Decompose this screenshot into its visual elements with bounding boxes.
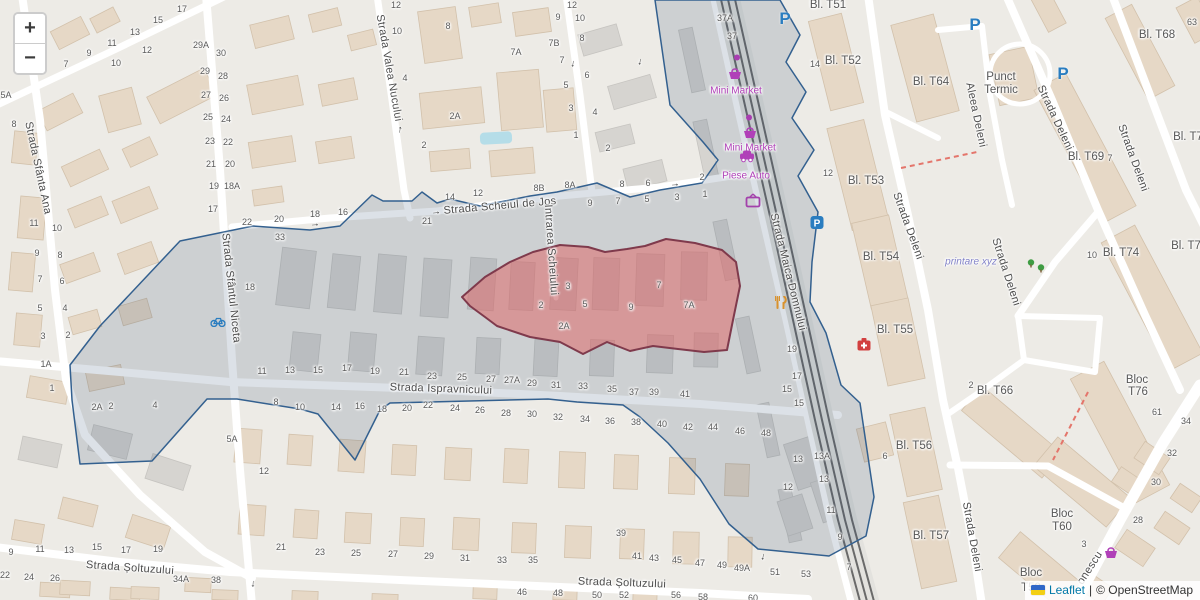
building [287,434,313,466]
map-geometry-layer [0,0,1200,600]
building [444,447,472,480]
parking-box-icon: P [810,215,825,235]
dashed-path [901,152,977,168]
building [619,529,644,560]
building [827,119,889,230]
building [513,8,552,37]
firstaid-icon [857,338,871,357]
osm-copyright: © OpenStreetMap [1096,583,1193,597]
pond [480,131,513,145]
building [871,298,925,386]
ukraine-flag-icon [1031,585,1045,595]
parking-icon: P [1057,64,1068,84]
building [503,448,529,483]
tree-icon [1037,260,1045,278]
building [399,517,424,546]
building [372,594,398,600]
building [318,78,358,106]
building [608,74,657,109]
building [347,29,376,51]
building [58,497,98,527]
map-canvas[interactable]: 791011121315175A81110987654321A129A30292… [0,0,1200,600]
building [18,436,62,468]
tree-icon [1027,255,1035,273]
building [185,577,212,592]
building [50,16,89,49]
basket-icon [1103,545,1119,565]
building [131,587,159,600]
zoom-out-button[interactable]: − [15,44,45,73]
building [247,75,304,114]
car-icon [739,149,755,168]
building [497,69,544,130]
building [469,3,502,27]
building [452,517,480,550]
building [1105,4,1175,99]
parking-icon: P [969,15,980,35]
building [60,580,91,596]
zoom-control: + − [13,12,47,75]
building [391,444,417,475]
building [511,523,536,554]
building [122,137,158,168]
building [90,7,120,33]
building [1176,0,1200,43]
tv-icon [746,194,761,213]
shop-dot-icon [734,48,741,66]
attribution-separator: | [1089,583,1092,597]
building [212,590,238,600]
building [308,8,341,33]
svg-text:P: P [814,219,821,230]
building [564,526,591,559]
building [808,13,863,110]
building [595,124,635,152]
building [558,452,585,489]
building [489,147,535,177]
building [419,87,484,129]
zoom-in-button[interactable]: + [15,14,45,44]
building [1030,0,1066,32]
building [316,136,355,163]
building [68,196,109,228]
building [147,68,218,124]
building [1170,483,1200,512]
building [429,148,471,171]
building [252,186,284,206]
building [99,87,142,133]
building [11,520,44,545]
building [292,591,318,600]
restaurant-icon [775,296,788,314]
road [377,0,410,218]
building [61,149,108,187]
building [1154,511,1190,544]
building [8,252,35,292]
building [578,24,623,56]
building [344,512,372,543]
building [673,532,700,564]
building [613,455,638,490]
building [543,88,577,132]
building [473,587,497,600]
building [418,7,463,64]
building [112,186,158,223]
building [60,252,101,283]
attribution-bar: Leaflet | © OpenStreetMap [1025,581,1200,600]
building [293,509,319,539]
building [890,407,943,497]
building [1115,529,1155,566]
building [11,131,38,165]
road [1018,316,1100,372]
building [248,136,296,169]
bicycle-icon [211,314,226,332]
building [250,16,295,49]
shop-dot-icon [746,108,753,126]
building [903,495,957,589]
parking-icon: P [779,9,790,29]
building [852,215,909,309]
leaflet-link[interactable]: Leaflet [1049,583,1085,597]
building [14,313,43,347]
basket-icon [742,125,758,145]
basket-icon [727,66,743,86]
building [17,196,47,240]
